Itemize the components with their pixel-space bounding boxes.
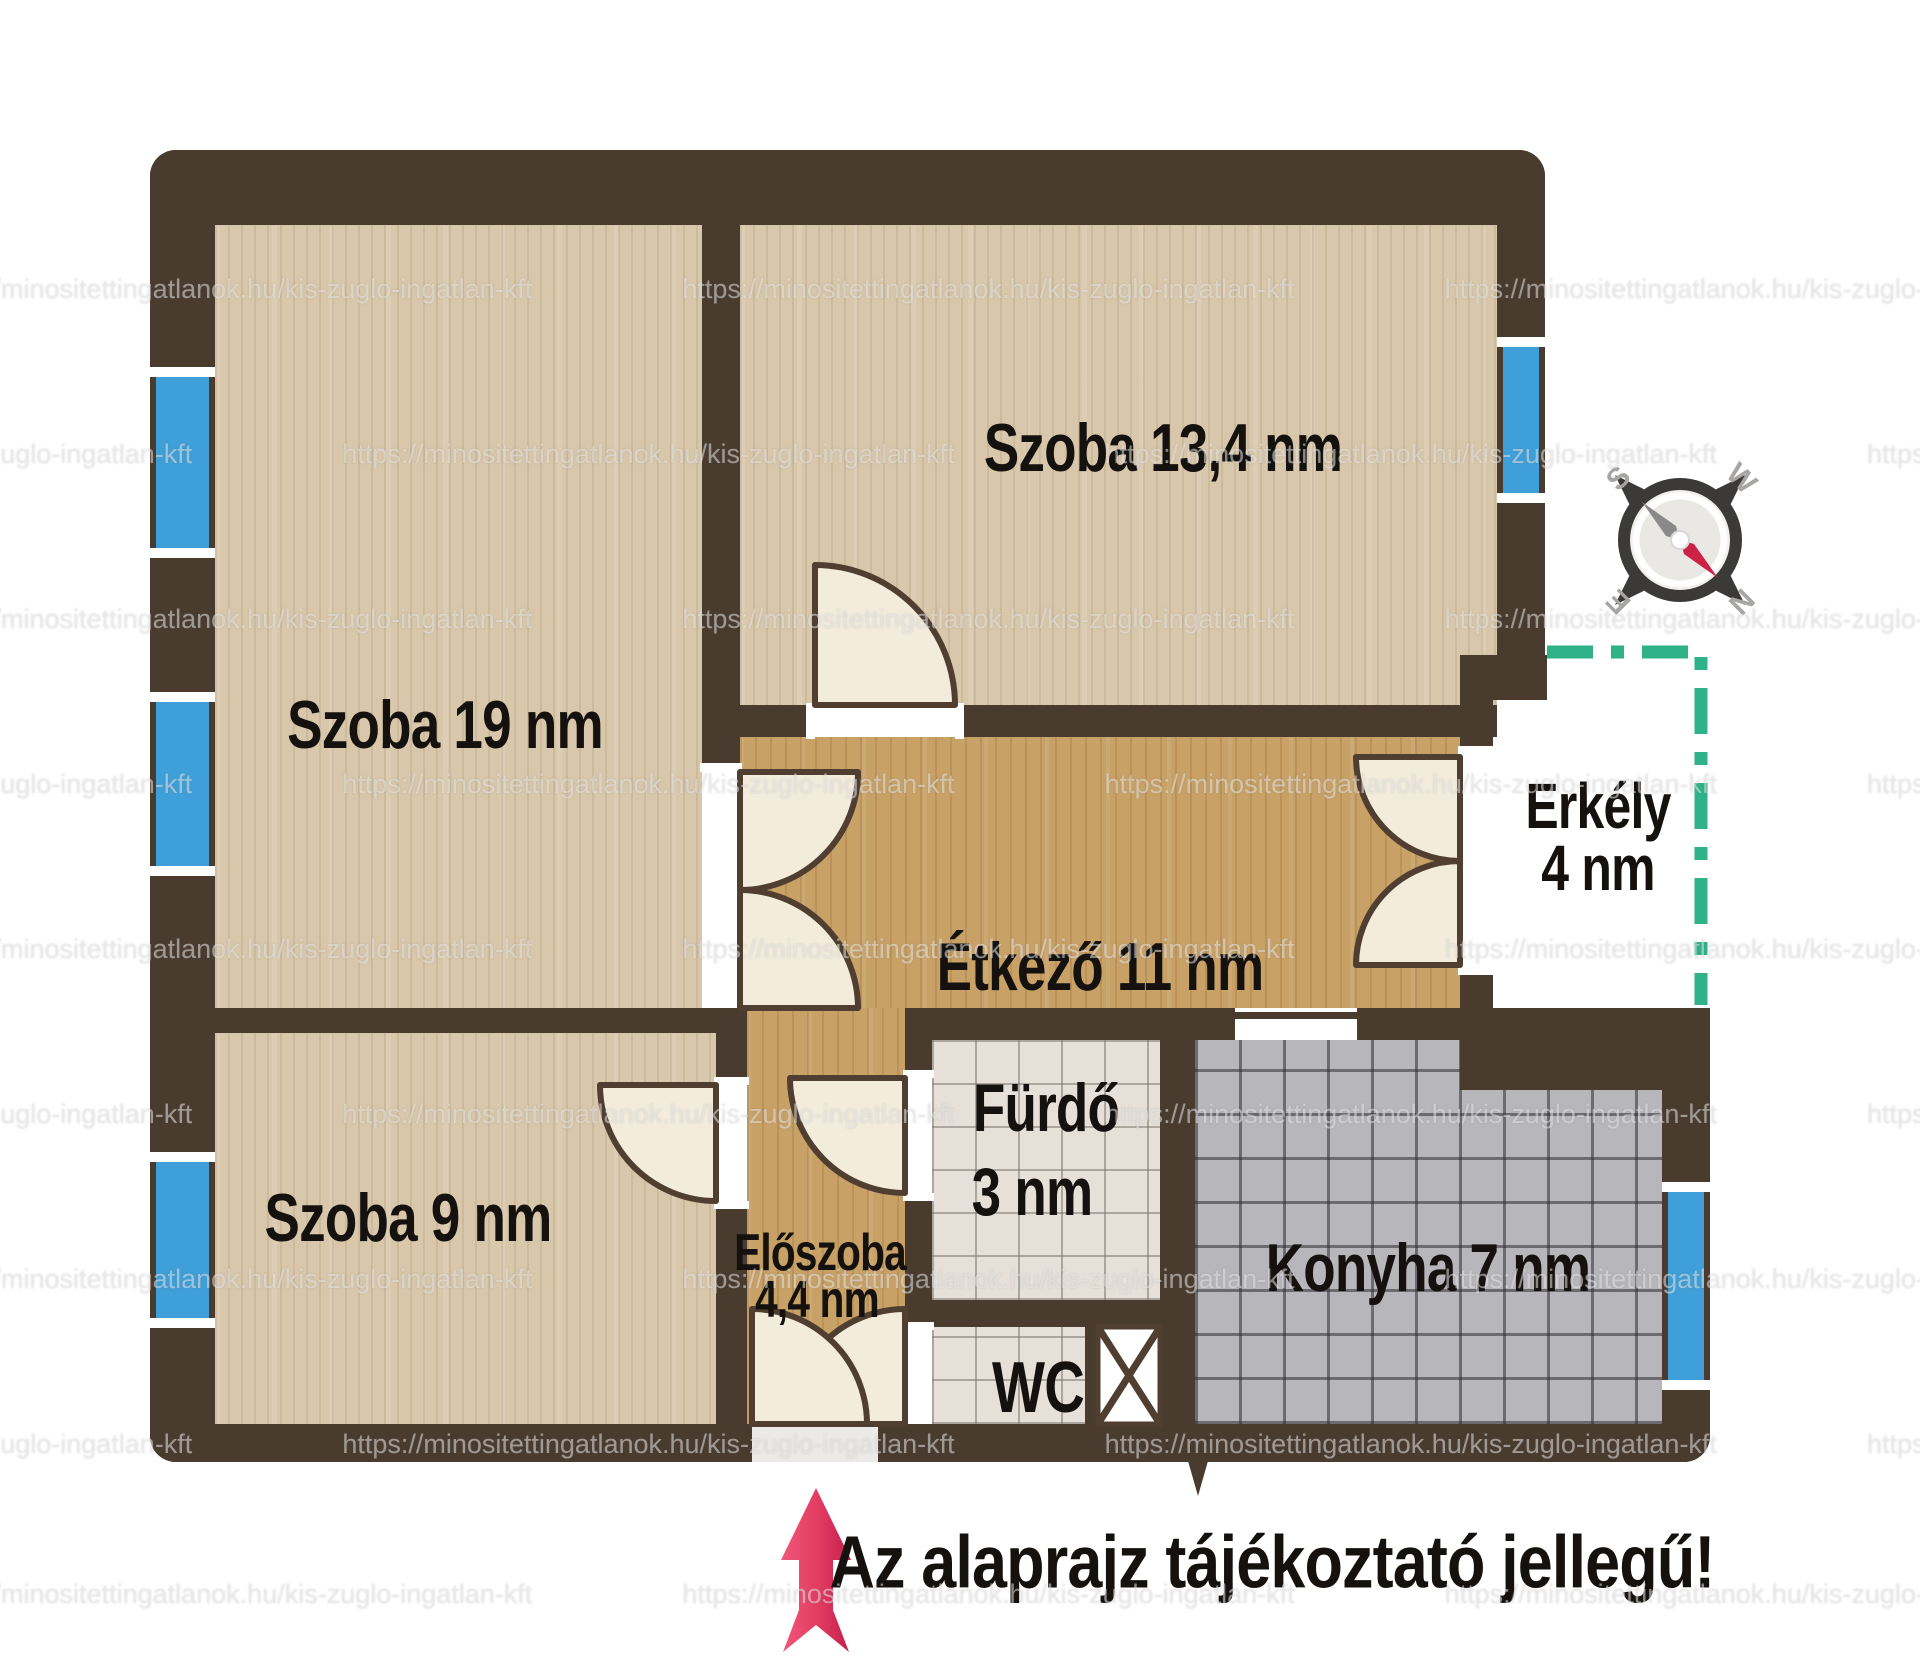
door-arc-balcony-lower — [1356, 861, 1460, 965]
door-arc-szoba19-lower — [740, 890, 858, 1008]
room-label-szoba-13-4: Szoba 13,4 nm — [984, 409, 1342, 487]
compass-icon: S W N E — [1600, 457, 1764, 621]
door-arc-szoba19-upper — [740, 772, 858, 890]
door-arc-furdo — [790, 1078, 905, 1193]
room-area-furdo: 3 nm — [972, 1153, 1093, 1231]
room-area-eloszoba: 4,4 nm — [755, 1270, 879, 1330]
door-arc-szoba9 — [600, 1085, 716, 1201]
disclaimer-text: Az alaprajz tájékoztató jellegű! — [829, 1520, 1714, 1605]
room-label-szoba-9: Szoba 9 nm — [265, 1179, 552, 1257]
room-label-konyha: Konyha 7 nm — [1266, 1229, 1590, 1307]
door-arc-szoba134 — [815, 565, 955, 705]
room-area-erkely: 4 nm — [1541, 831, 1654, 905]
floor-plan: S W N E Szoba 19 nm Szoba 13,4 nm Étkező… — [0, 0, 1920, 1669]
room-label-wc: WC — [992, 1347, 1084, 1429]
room-label-furdo: Fürdő — [973, 1069, 1119, 1147]
room-label-etkezo: Étkező 11 nm — [937, 928, 1264, 1006]
room-label-szoba-19: Szoba 19 nm — [287, 686, 603, 764]
vent-shaft-icon — [1098, 1327, 1160, 1424]
wall-spike — [1182, 1440, 1214, 1496]
door-arc-balcony-upper — [1356, 757, 1460, 861]
